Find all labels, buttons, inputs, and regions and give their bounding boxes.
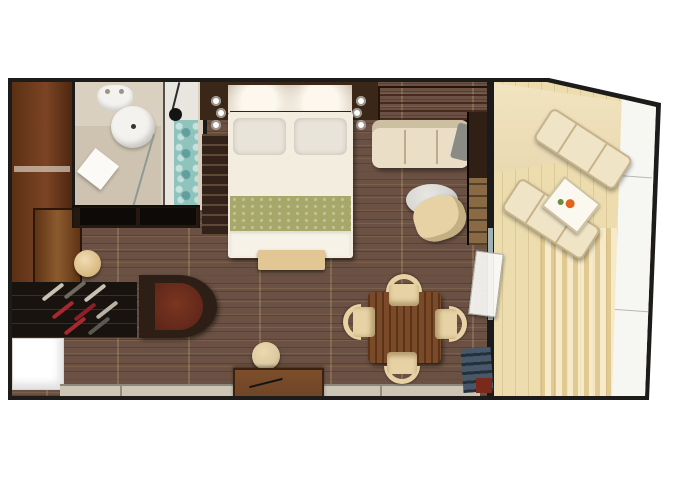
hull-joint-line: [610, 309, 650, 313]
bottle: [88, 316, 111, 335]
headboard-mirror: [228, 85, 352, 113]
shower-hose: [172, 82, 181, 110]
shower-head-icon: [169, 108, 182, 121]
pillow-right: [294, 118, 347, 155]
bottle: [84, 283, 107, 302]
curved-vanity: [139, 275, 217, 338]
dining-chair-west: [343, 301, 377, 343]
pillow-left: [233, 118, 286, 155]
green-bed-runner: [230, 196, 351, 231]
chair-seat: [389, 284, 419, 306]
bathroom-hall-closet: [72, 205, 200, 228]
sconce-lamp-icon: [352, 108, 362, 118]
bottle: [64, 280, 87, 299]
shower: [163, 82, 198, 206]
wardrobe-shelf: [14, 166, 70, 172]
stateroom-interior: [8, 78, 662, 400]
lounger-segment: [525, 194, 545, 224]
bottle: [42, 282, 65, 301]
entry-round-stool: [74, 250, 101, 277]
sconce-lamp-icon: [356, 96, 366, 106]
sconce-lamp-icon: [356, 120, 366, 130]
stateroom-outline: [8, 78, 662, 400]
sconce-lamp-icon: [216, 108, 226, 118]
toilet-detail: [119, 89, 124, 94]
toilet-detail: [105, 89, 110, 94]
bottle: [52, 300, 75, 319]
desk-stool: [252, 342, 280, 370]
chair-seat: [353, 307, 375, 337]
pen-icon: [249, 378, 282, 388]
double-bed: [228, 112, 353, 258]
shower-mosaic-tile: [174, 120, 198, 206]
lounger-segment: [557, 124, 577, 154]
closet-panel: [80, 208, 136, 225]
bottle-rack: [10, 282, 137, 338]
drink-icon: [564, 197, 577, 210]
closet-panel: [140, 208, 196, 225]
dining-chair-south: [381, 350, 423, 384]
writing-desk: [233, 368, 324, 400]
lounger-segment: [587, 143, 607, 173]
foot-bench: [258, 250, 325, 270]
luggage-rack-base: [476, 378, 492, 393]
sofa-seam: [404, 130, 406, 164]
sink-drain: [131, 124, 136, 129]
sofa-seam: [436, 130, 438, 164]
floorplan-image: [0, 0, 680, 486]
open-floor-nook: [12, 338, 64, 390]
chair-seat: [435, 309, 457, 339]
dining-chair-north: [383, 274, 425, 308]
bathroom: [72, 82, 207, 210]
dining-chair-east: [433, 303, 467, 345]
sconce-lamp-icon: [211, 120, 221, 130]
chair-seat: [387, 352, 417, 374]
plant-icon: [556, 198, 564, 206]
vanity-front: [155, 283, 203, 330]
sconce-lamp-icon: [211, 96, 221, 106]
